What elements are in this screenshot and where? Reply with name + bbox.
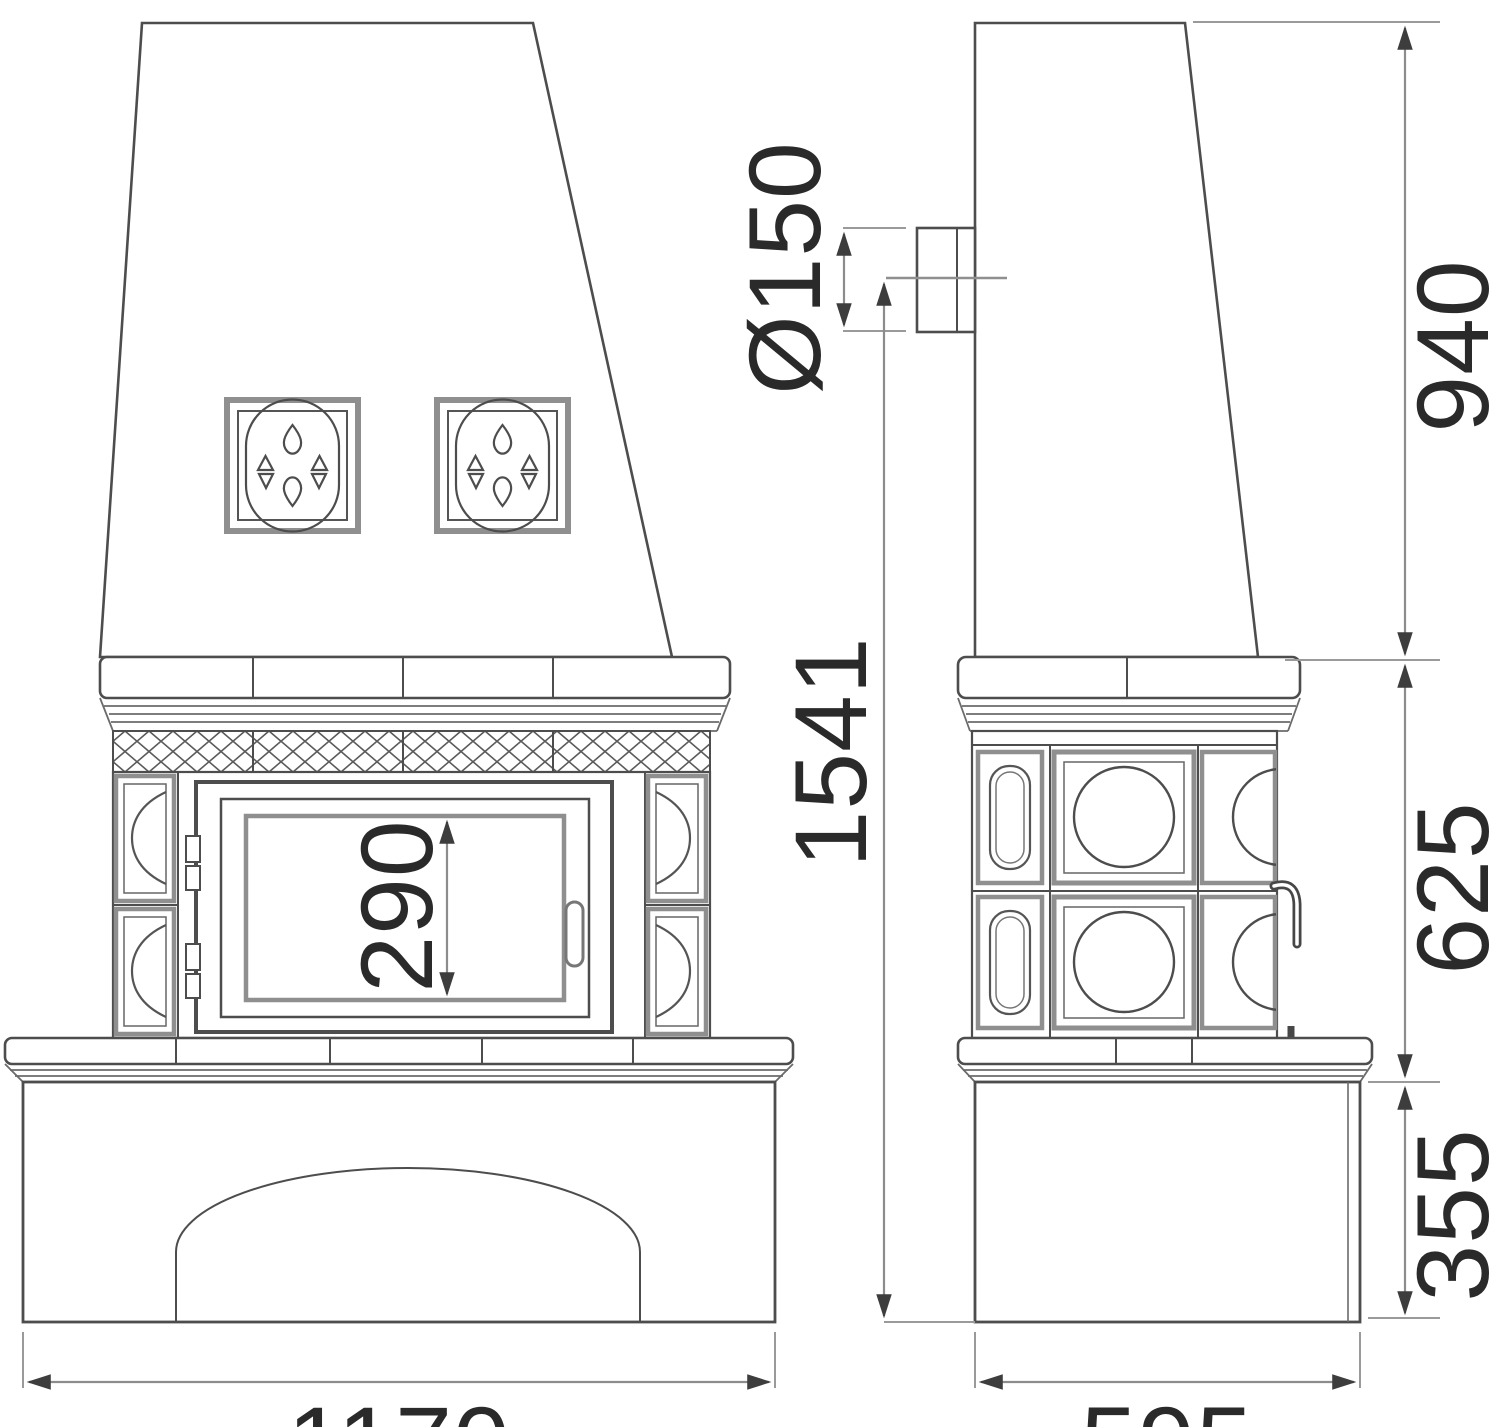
bench-shelf-side	[958, 1038, 1372, 1064]
hood-side	[975, 23, 1258, 657]
mantel-shelf-side	[958, 657, 1300, 698]
drawing-canvas: Ø150 940 1541 625 355 290 1170 595	[0, 0, 1500, 1427]
molding-side-lower	[958, 1064, 1372, 1082]
molding-front-lower	[5, 1064, 793, 1082]
dim-label-plinth-height: 355	[1396, 1128, 1500, 1301]
door-hinge-top	[186, 836, 200, 890]
dim-label-overall-width: 1170	[287, 1386, 510, 1427]
molding-front-upper	[100, 698, 730, 731]
dim-label-body-height: 625	[1396, 801, 1500, 974]
front-view	[5, 23, 793, 1322]
dim-label-height-to-flue: 1541	[774, 637, 888, 868]
bench-shelf-front	[5, 1038, 793, 1064]
rosette-tile-left	[227, 400, 358, 532]
door-hinge-bottom	[186, 944, 200, 998]
dim-label-overall-depth: 595	[1080, 1386, 1253, 1427]
molding-side-upper	[958, 698, 1300, 731]
dim-label-door-glass-height: 290	[340, 819, 454, 992]
flue-outlet	[917, 228, 975, 332]
lattice-frieze	[113, 731, 710, 772]
rosette-tile-right	[437, 400, 568, 532]
base-plinth-front	[23, 1082, 775, 1322]
hood-front	[100, 23, 672, 657]
door-handle-front	[566, 902, 583, 966]
dim-label-flue-diameter: Ø150	[728, 141, 842, 395]
stove-technical-drawing: Ø150 940 1541 625 355 290 1170 595	[0, 0, 1500, 1427]
dim-label-hood-height: 940	[1396, 259, 1500, 432]
mantel-shelf-front	[100, 657, 730, 698]
base-plinth-side	[975, 1082, 1360, 1322]
side-view	[886, 23, 1372, 1322]
